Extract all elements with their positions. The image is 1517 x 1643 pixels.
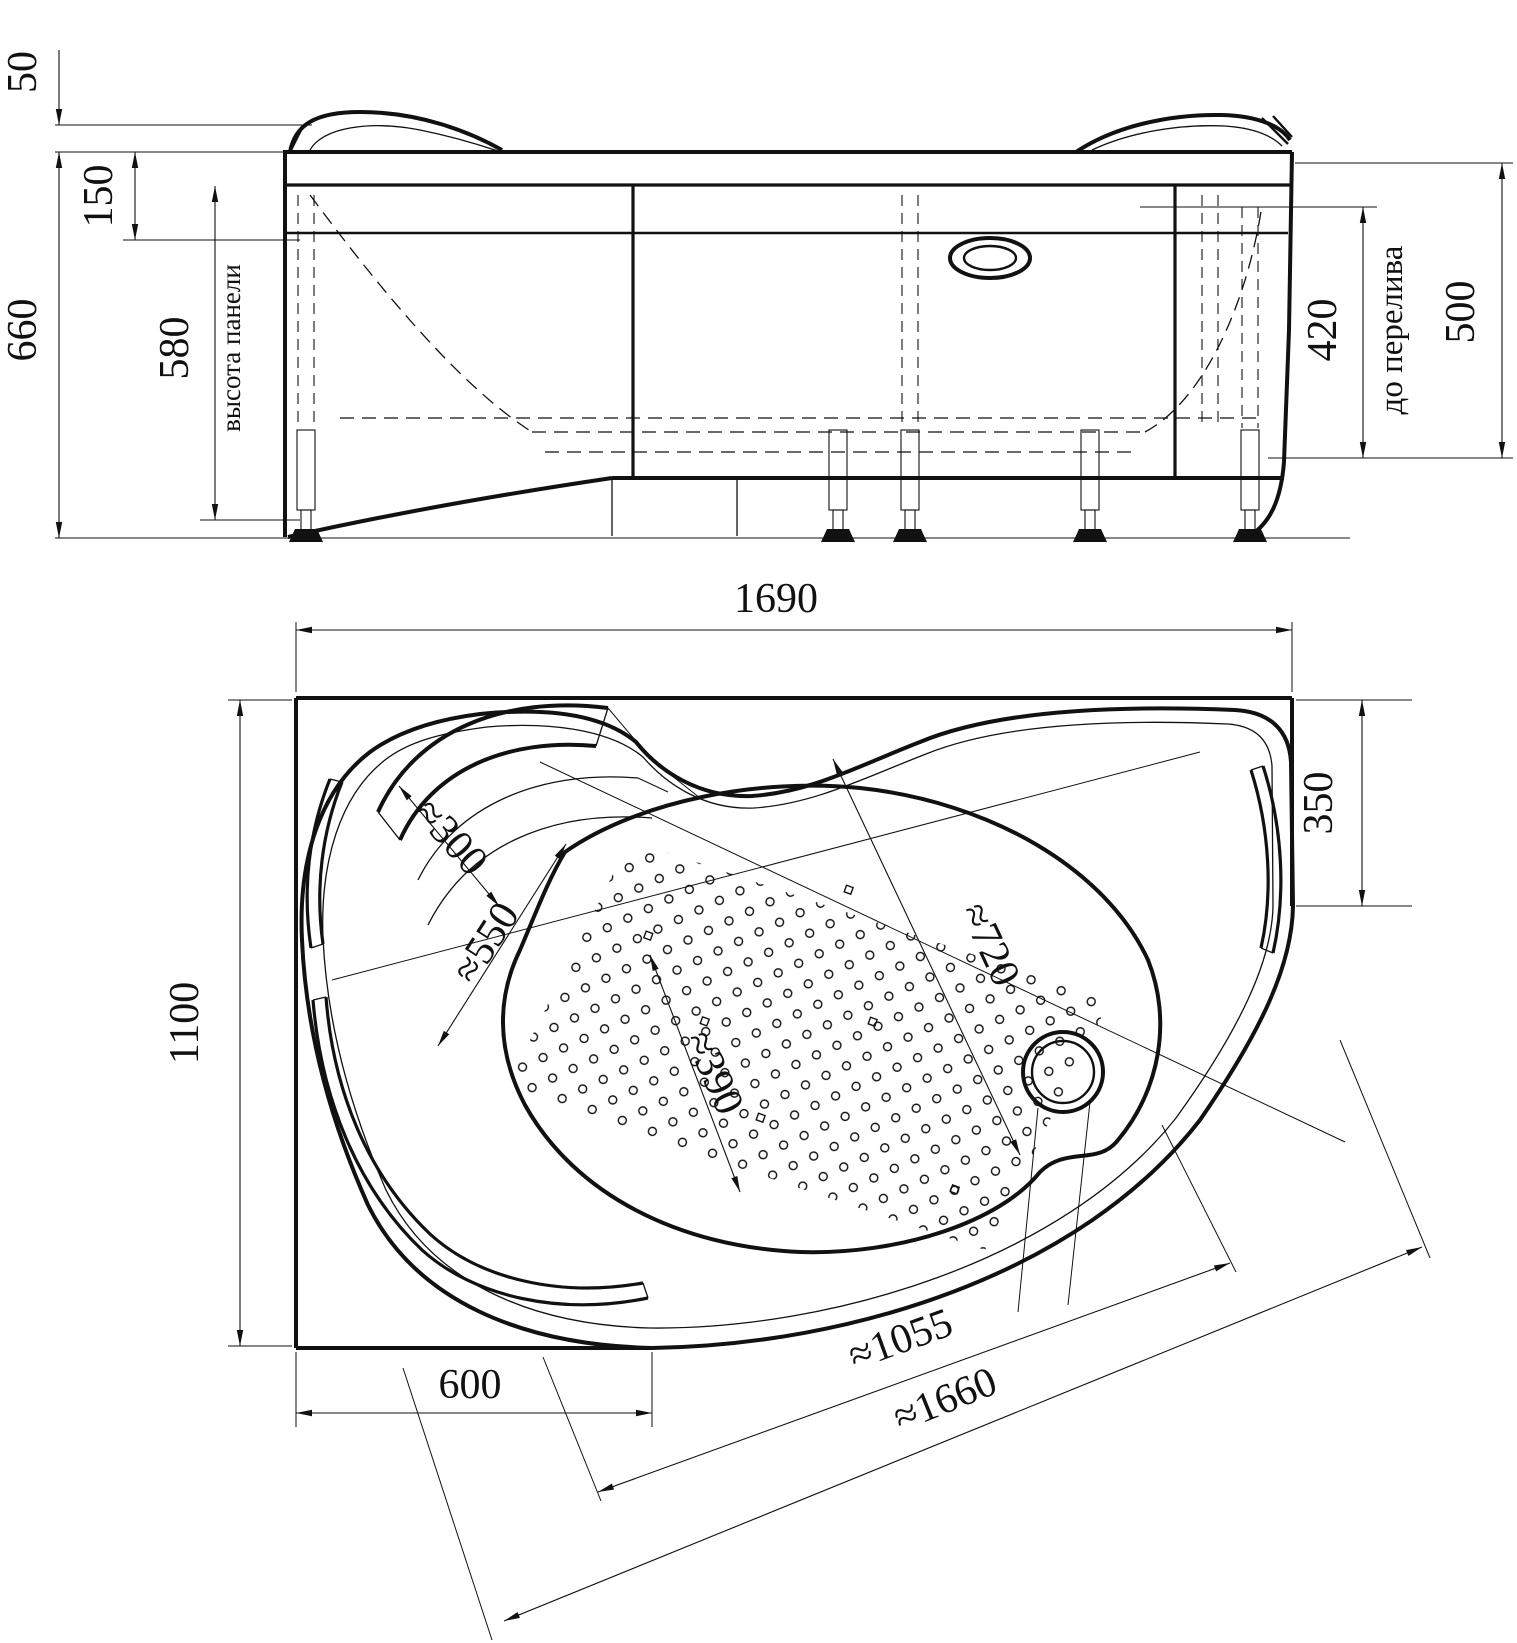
front-view-drawing [55,112,1350,542]
dim-350: 350 [1296,772,1342,835]
dim-550: ≈550 [443,894,528,991]
dim-600: 600 [439,1362,502,1408]
overflow-oval-inner [964,246,1016,270]
drawing-page: 50 660 150 580 высота панели 420 до пере… [0,0,1517,1643]
dim-660: 660 [0,299,46,362]
front-view: 50 660 150 580 высота панели 420 до пере… [0,50,1513,542]
front-view-dimensions: 50 660 150 580 высота панели 420 до пере… [0,50,1513,538]
dim-300: ≈300 [405,790,497,885]
headrest-left [290,112,502,152]
pillow-right [1251,766,1281,953]
dim-1690: 1690 [734,576,818,622]
dim-420: 420 [1300,299,1346,362]
label-panel-height: высота панели [216,264,246,432]
frame-legs [289,195,1267,542]
dim-150: 150 [76,165,122,228]
leg-300 [289,430,323,542]
apron-curve [288,478,612,537]
leg-838 [821,430,855,542]
antislip-dots-area [505,840,1110,1250]
seat-pillow-cap-2 [596,708,608,746]
drain-channel-2 [1068,1102,1090,1305]
dim-500: 500 [1438,281,1484,344]
label-to-overflow: до перелива [1374,245,1410,414]
technical-drawing: 50 660 150 580 высота панели 420 до пере… [0,0,1517,1643]
dim-1660: ≈1660 [887,1359,1003,1442]
leg-1090 [1073,430,1107,542]
plan-view-drawing [296,698,1345,1348]
plan-view: 1690 1100 350 600 ≈1055 ≈1660 [162,576,1430,1640]
dim-1100: 1100 [162,982,208,1064]
headrest-right [1076,115,1290,152]
overflow-oval-outer [950,238,1030,278]
dim-580: 580 [152,317,198,380]
hidden-leg-lines [298,195,1258,428]
dim-50: 50 [0,51,46,93]
seat-pillow-cap-1 [378,812,400,840]
leg-910 [893,430,927,542]
headrest-left-inner [310,126,498,151]
